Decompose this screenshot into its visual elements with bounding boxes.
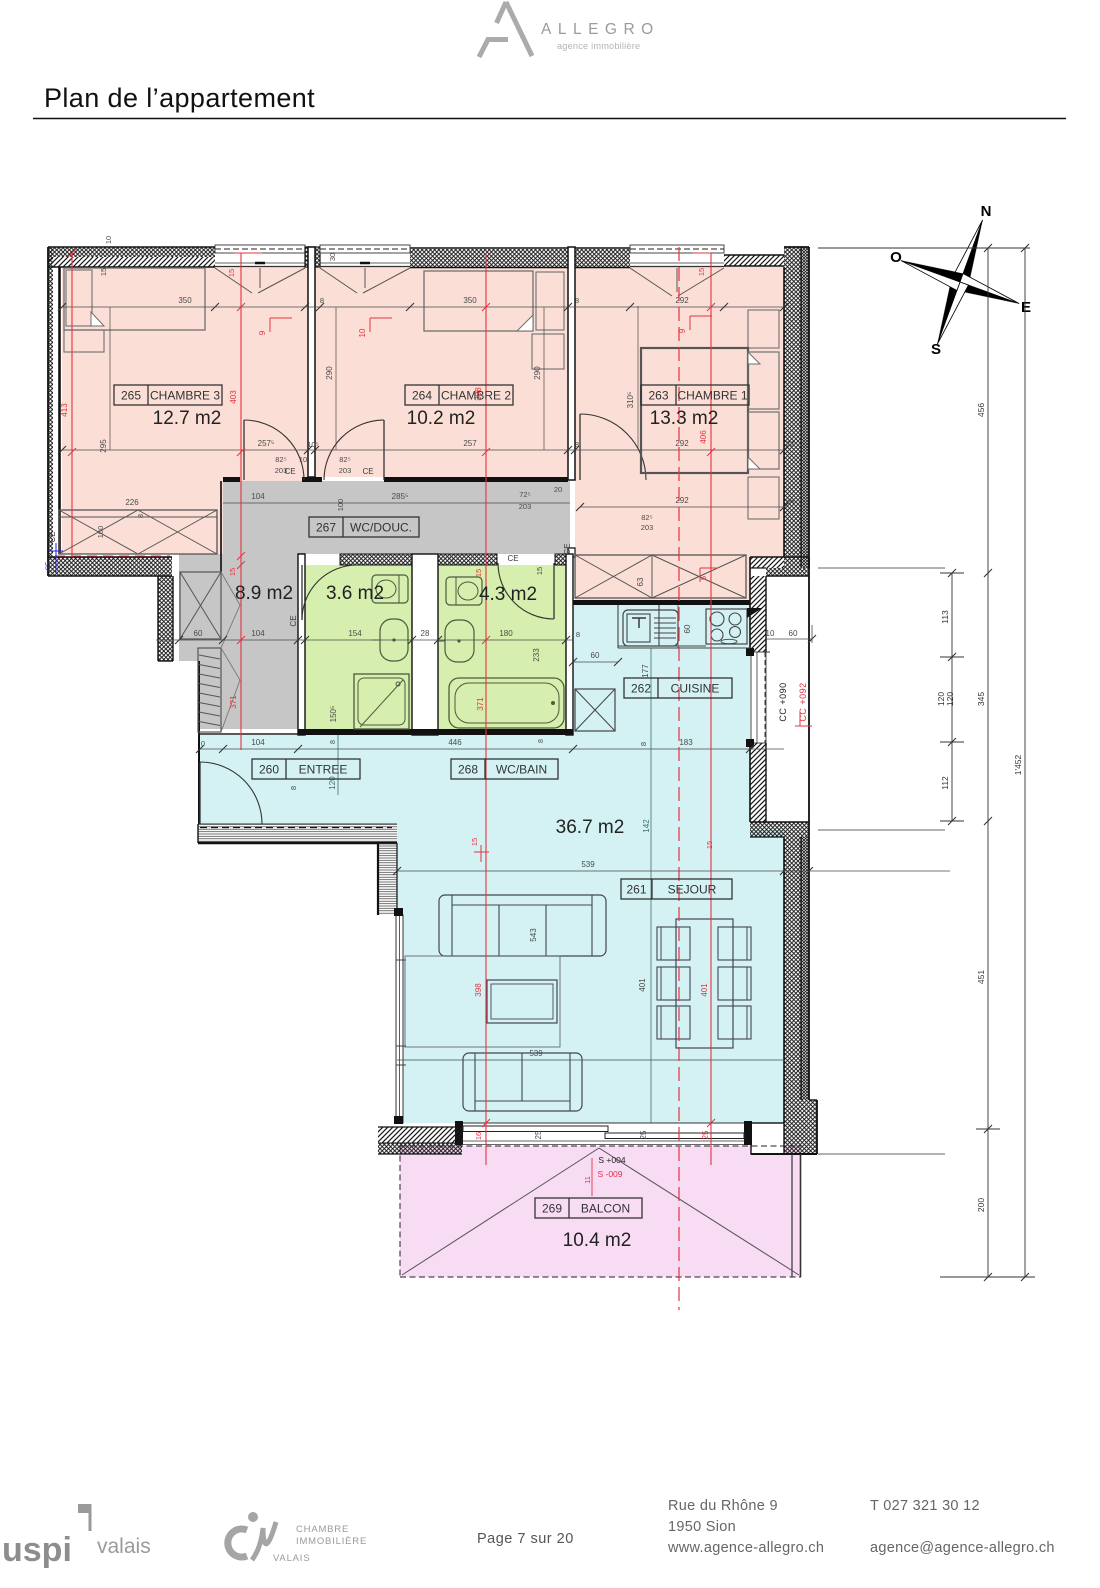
svg-text:12.7 m2: 12.7 m2 <box>153 408 222 429</box>
svg-text:60: 60 <box>789 629 798 638</box>
svg-text:60: 60 <box>683 624 692 633</box>
svg-text:28: 28 <box>421 629 430 638</box>
svg-text:82⁵: 82⁵ <box>339 455 350 464</box>
svg-text:290: 290 <box>325 366 334 380</box>
svg-text:IMMOBILIÈRE: IMMOBILIÈRE <box>296 1536 367 1547</box>
svg-text:16: 16 <box>474 1132 483 1140</box>
svg-text:72⁵: 72⁵ <box>519 490 530 499</box>
svg-text:406: 406 <box>699 430 708 444</box>
svg-text:N: N <box>981 203 992 220</box>
svg-text:403: 403 <box>229 390 238 404</box>
svg-text:257: 257 <box>463 439 477 448</box>
svg-text:262: 262 <box>631 682 651 696</box>
svg-text:8: 8 <box>575 296 579 305</box>
svg-text:267: 267 <box>316 521 336 535</box>
svg-text:CE: CE <box>284 467 295 476</box>
svg-text:CE: CE <box>48 531 57 542</box>
svg-text:38: 38 <box>786 439 794 448</box>
svg-text:451: 451 <box>976 970 986 984</box>
svg-text:20: 20 <box>554 485 562 494</box>
svg-text:183: 183 <box>679 738 693 747</box>
svg-text:292: 292 <box>675 296 689 305</box>
svg-text:agence immobilière: agence immobilière <box>557 41 640 51</box>
svg-text:SEJOUR: SEJOUR <box>668 883 717 897</box>
svg-text:543: 543 <box>529 928 538 942</box>
svg-text:www.agence-allegro.ch: www.agence-allegro.ch <box>667 1540 824 1556</box>
svg-text:10.2 m2: 10.2 m2 <box>407 408 476 429</box>
svg-text:142: 142 <box>642 819 651 833</box>
svg-text:261: 261 <box>626 883 646 897</box>
svg-text:82⁵: 82⁵ <box>641 513 652 522</box>
svg-text:350: 350 <box>463 296 477 305</box>
svg-text:CHAMBRE 2: CHAMBRE 2 <box>441 389 511 403</box>
svg-text:203: 203 <box>641 523 654 532</box>
svg-text:8: 8 <box>575 440 579 449</box>
svg-text:15: 15 <box>227 269 236 277</box>
svg-text:10: 10 <box>104 236 113 244</box>
svg-text:203: 203 <box>519 502 532 511</box>
svg-text:WC/DOUC.: WC/DOUC. <box>350 521 412 535</box>
svg-text:154: 154 <box>348 629 362 638</box>
svg-text:295: 295 <box>99 439 108 453</box>
svg-text:104: 104 <box>251 629 265 638</box>
svg-text:264: 264 <box>412 389 432 403</box>
svg-text:25: 25 <box>534 1130 543 1139</box>
svg-text:15: 15 <box>470 838 479 846</box>
svg-text:539: 539 <box>581 860 595 869</box>
svg-text:200: 200 <box>976 1198 986 1212</box>
svg-text:233: 233 <box>532 648 541 662</box>
svg-text:11: 11 <box>583 1176 592 1184</box>
svg-text:9: 9 <box>678 328 687 333</box>
svg-text:539: 539 <box>529 1049 543 1058</box>
svg-text:446: 446 <box>448 738 462 747</box>
svg-text:CE: CE <box>289 615 298 626</box>
svg-text:1'452: 1'452 <box>1013 754 1023 775</box>
svg-text:S: S <box>931 341 941 358</box>
svg-text:E: E <box>1021 299 1031 316</box>
svg-text:valais: valais <box>97 1535 151 1558</box>
svg-text:9: 9 <box>258 330 267 335</box>
svg-text:269: 269 <box>542 1202 562 1216</box>
svg-text:S -009: S -009 <box>597 1169 622 1179</box>
svg-text:350: 350 <box>178 296 192 305</box>
svg-text:8: 8 <box>136 514 145 518</box>
svg-text:Page 7 sur 20: Page 7 sur 20 <box>477 1531 574 1547</box>
svg-text:8: 8 <box>576 630 580 639</box>
svg-text:120: 120 <box>945 692 955 706</box>
svg-text:15: 15 <box>705 841 714 849</box>
svg-text:uspi: uspi <box>2 1531 72 1569</box>
svg-text:O: O <box>890 249 902 266</box>
svg-text:8: 8 <box>639 742 648 746</box>
svg-text:ALLEGRO: ALLEGRO <box>541 21 660 38</box>
svg-text:290: 290 <box>533 366 542 380</box>
svg-text:180: 180 <box>499 629 513 638</box>
svg-text:Rue du Rhône 9: Rue du Rhône 9 <box>668 1498 778 1514</box>
svg-text:15: 15 <box>535 567 544 575</box>
svg-text:104: 104 <box>251 492 265 501</box>
svg-text:100: 100 <box>96 526 105 539</box>
svg-text:285⁵: 285⁵ <box>392 492 409 501</box>
svg-text:CC +090: CC +090 <box>778 682 788 721</box>
svg-text:3.6 m2: 3.6 m2 <box>326 583 384 604</box>
svg-text:36.7 m2: 36.7 m2 <box>556 817 625 838</box>
svg-text:38: 38 <box>786 496 794 505</box>
svg-text:310⁵: 310⁵ <box>626 392 635 409</box>
svg-text:CE: CE <box>507 554 518 563</box>
svg-text:398: 398 <box>474 983 483 997</box>
svg-text:WC/BAIN: WC/BAIN <box>496 763 547 777</box>
svg-text:Plan de l’appartement: Plan de l’appartement <box>44 83 315 113</box>
svg-text:8.9 m2: 8.9 m2 <box>235 583 293 604</box>
svg-text:292: 292 <box>675 496 689 505</box>
svg-text:30: 30 <box>328 253 337 261</box>
svg-text:268: 268 <box>458 763 478 777</box>
svg-text:60: 60 <box>194 629 203 638</box>
svg-text:401: 401 <box>700 983 709 997</box>
svg-text:63: 63 <box>636 577 645 586</box>
svg-text:CHAMBRE: CHAMBRE <box>296 1524 349 1535</box>
svg-text:10: 10 <box>766 629 775 638</box>
svg-text:413: 413 <box>60 403 69 417</box>
svg-text:BALCON: BALCON <box>581 1202 630 1216</box>
svg-text:15: 15 <box>446 556 455 564</box>
svg-text:15: 15 <box>228 568 237 576</box>
svg-text:0: 0 <box>201 739 205 748</box>
svg-text:4.3 m2: 4.3 m2 <box>479 584 537 605</box>
svg-text:CHAMBRE 1: CHAMBRE 1 <box>677 389 747 403</box>
svg-text:25: 25 <box>701 1130 710 1139</box>
svg-text:401: 401 <box>638 978 647 992</box>
svg-text:13.3 m2: 13.3 m2 <box>650 408 719 429</box>
svg-text:60: 60 <box>591 651 600 660</box>
svg-text:100: 100 <box>336 499 345 512</box>
svg-text:CHAMBRE 3: CHAMBRE 3 <box>150 389 220 403</box>
svg-text:104: 104 <box>251 738 265 747</box>
svg-text:8: 8 <box>330 740 337 744</box>
svg-text:112: 112 <box>940 776 950 790</box>
svg-text:150⁵: 150⁵ <box>329 706 338 723</box>
svg-text:ENTREE: ENTREE <box>299 763 348 777</box>
svg-text:371: 371 <box>476 697 485 711</box>
svg-text:226: 226 <box>125 498 139 507</box>
svg-text:345: 345 <box>976 692 986 706</box>
svg-text:VALAIS: VALAIS <box>273 1553 310 1564</box>
svg-text:1950 Sion: 1950 Sion <box>668 1519 736 1535</box>
svg-text:8: 8 <box>538 739 545 743</box>
svg-text:371: 371 <box>229 695 238 709</box>
svg-text:8: 8 <box>289 786 298 790</box>
svg-text:CE: CE <box>45 561 52 571</box>
svg-text:S +004: S +004 <box>598 1155 625 1165</box>
svg-text:10: 10 <box>358 328 367 337</box>
svg-text:15: 15 <box>474 569 483 577</box>
svg-text:15: 15 <box>697 268 706 276</box>
svg-text:82⁵: 82⁵ <box>275 455 286 464</box>
svg-text:15: 15 <box>99 268 108 276</box>
svg-text:CUISINE: CUISINE <box>671 682 720 696</box>
svg-text:265: 265 <box>121 389 141 403</box>
svg-text:120: 120 <box>328 776 337 790</box>
svg-text:260: 260 <box>259 763 279 777</box>
svg-text:CE: CE <box>563 543 572 554</box>
svg-text:T 027 321 30 12: T 027 321 30 12 <box>870 1498 980 1514</box>
svg-text:10⁵: 10⁵ <box>307 440 318 449</box>
svg-text:CE: CE <box>362 467 373 476</box>
svg-text:10: 10 <box>299 455 307 464</box>
svg-text:agence@agence-allegro.ch: agence@agence-allegro.ch <box>870 1540 1055 1556</box>
svg-text:177: 177 <box>641 664 650 678</box>
svg-text:113: 113 <box>940 610 950 624</box>
svg-text:8: 8 <box>320 296 324 305</box>
svg-text:263: 263 <box>648 389 668 403</box>
svg-text:203: 203 <box>339 466 352 475</box>
svg-text:25: 25 <box>639 1130 648 1139</box>
svg-text:10.4 m2: 10.4 m2 <box>563 1230 632 1251</box>
svg-text:456: 456 <box>976 403 986 417</box>
svg-text:292: 292 <box>675 439 689 448</box>
svg-text:257⁵: 257⁵ <box>258 439 275 448</box>
